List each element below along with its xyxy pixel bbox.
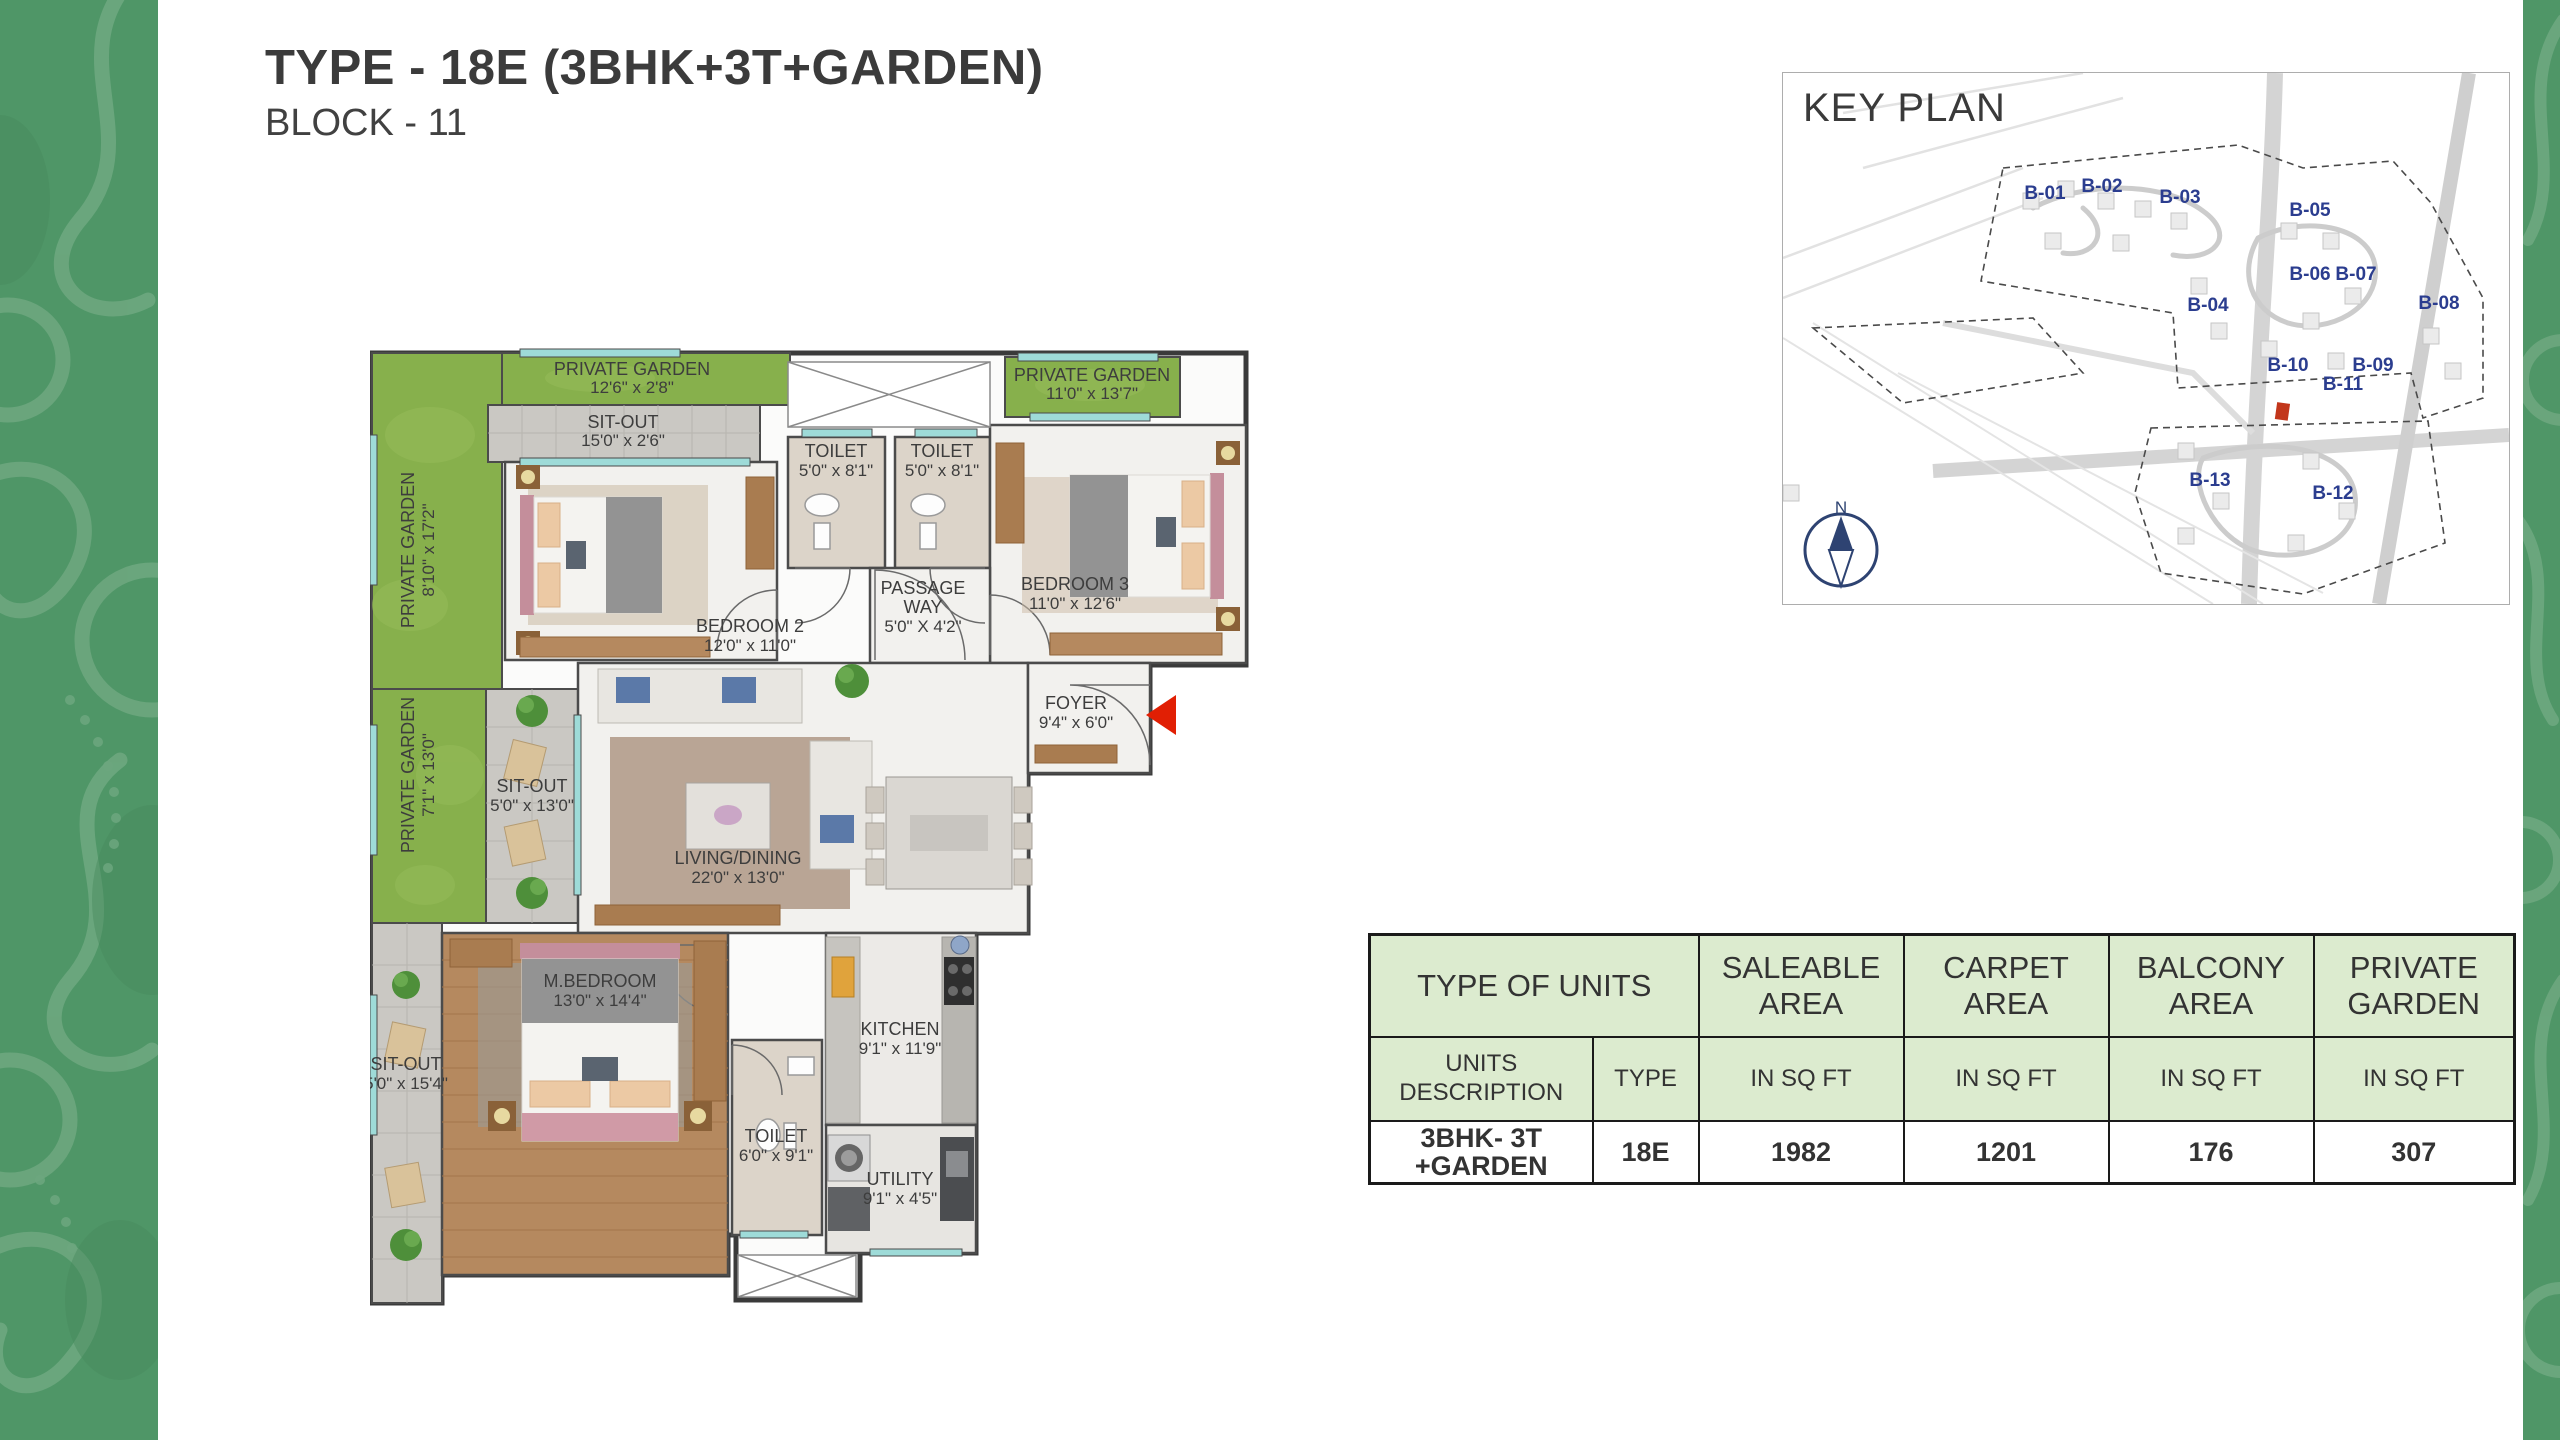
block-label-b01: B-01 [2024,183,2066,204]
svg-text:9'4" x 6'0": 9'4" x 6'0" [1039,713,1113,732]
block-label-b11: B-11 [2323,374,2364,395]
header-saleable-area: SALEABLE AREA [1699,935,1904,1038]
svg-text:WAY: WAY [904,597,943,617]
svg-text:5'0" X 4'2": 5'0" X 4'2" [884,617,961,636]
paisley-pattern-left [0,0,158,1440]
page-title: TYPE - 18E (3BHK+3T+GARDEN) [265,42,1044,96]
block-label-b08: B-08 [2418,293,2459,314]
value-type: 18E [1593,1121,1699,1184]
label-bedroom-3: BEDROOM 3 [1021,574,1129,594]
block-label-b10: B-10 [2267,355,2308,376]
floor-plan-drawing: PRIVATE GARDEN 12'6" x 2'8" SIT-OUT 15'0… [370,345,1250,1310]
left-decorative-band [0,0,158,1440]
subheader-unit-1: IN SQ FT [1699,1037,1904,1121]
value-carpet-area: 1201 [1904,1121,2109,1184]
label-toilet-2: TOILET [911,441,974,461]
block-label-b09: B-09 [2352,355,2393,376]
svg-text:9'1" x 11'9": 9'1" x 11'9" [859,1039,942,1058]
floor-plan: PRIVATE GARDEN 12'6" x 2'8" SIT-OUT 15'0… [370,345,1250,1310]
svg-text:13'0" x 14'4": 13'0" x 14'4" [553,991,646,1010]
block-label-b12: B-12 [2312,483,2353,504]
brochure-page: { "page": { "title": "TYPE - 18E (3BHK+3… [0,0,2560,1440]
key-plan-title: KEY PLAN [1803,86,2006,130]
header-type-of-units: TYPE OF UNITS [1370,935,1699,1038]
label-living-dining: LIVING/DINING [674,848,801,868]
svg-text:5'0" x 8'1": 5'0" x 8'1" [799,461,873,480]
right-decorative-band [2523,0,2560,1440]
value-units-description: 3BHK- 3T +GARDEN [1370,1121,1593,1184]
svg-text:8'10" x 17'2": 8'10" x 17'2" [419,503,438,596]
svg-text:22'0" x 13'0": 22'0" x 13'0" [691,868,784,887]
label-sit-out-left: SIT-OUT [497,776,568,796]
svg-text:11'0" x 13'7": 11'0" x 13'7" [1046,384,1138,403]
block-label-b06: B-06 [2289,264,2330,285]
block-label-b04: B-04 [2187,295,2229,316]
label-sit-out-top: SIT-OUT [588,412,659,432]
master-bedroom-furniture [450,939,726,1141]
label-private-garden-left-lower: PRIVATE GARDEN [398,697,418,853]
block-label-b03: B-03 [2159,187,2200,208]
svg-text:12'6" x 2'8": 12'6" x 2'8" [590,378,674,397]
highlighted-block-marker [2275,402,2290,421]
key-plan: B-01 B-02 B-03 B-04 B-05 B-06 B-07 B-08 … [1782,72,2510,605]
subheader-unit-2: IN SQ FT [1904,1037,2109,1121]
subheader-unit-4: IN SQ FT [2314,1037,2515,1121]
paisley-pattern-right [2523,0,2560,1440]
svg-text:6'0" x 9'1": 6'0" x 9'1" [739,1146,813,1165]
value-saleable-area: 1982 [1699,1121,1904,1184]
north-compass-icon: N [1805,498,1877,586]
svg-text:12'0" x 11'0": 12'0" x 11'0" [704,636,796,655]
svg-text:15'0" x 2'6": 15'0" x 2'6" [581,431,665,450]
label-private-garden-top: PRIVATE GARDEN [554,359,710,379]
label-toilet-1: TOILET [805,441,868,461]
foyer-furniture [1035,745,1117,763]
block-label-b05: B-05 [2289,200,2331,221]
table-header-row: TYPE OF UNITS SALEABLE AREA CARPET AREA … [1370,935,2515,1038]
svg-text:11'0" x 12'6": 11'0" x 12'6" [1029,594,1121,613]
subheader-type: TYPE [1593,1037,1699,1121]
subheader-units-description: UNITS DESCRIPTION [1370,1037,1593,1121]
label-m-bedroom: M.BEDROOM [543,971,656,991]
block-label-b07: B-07 [2335,264,2376,285]
svg-text:5'0" x 15'4": 5'0" x 15'4" [370,1074,448,1093]
label-m-toilet: TOILET [745,1126,808,1146]
value-private-garden: 307 [2314,1121,2515,1184]
page-subtitle: BLOCK - 11 [265,102,1044,145]
svg-text:7'1" x 13'0": 7'1" x 13'0" [419,733,438,817]
units-table: TYPE OF UNITS SALEABLE AREA CARPET AREA … [1368,933,2516,1185]
svg-text:5'0" x 8'1": 5'0" x 8'1" [905,461,979,480]
subheader-unit-3: IN SQ FT [2109,1037,2314,1121]
label-private-garden-top-right: PRIVATE GARDEN [1014,365,1170,385]
label-kitchen: KITCHEN [860,1019,939,1039]
block-label-b02: B-02 [2081,176,2122,197]
label-sit-out-bottom: SIT-OUT [371,1054,442,1074]
header-balcony-area: BALCONY AREA [2109,935,2314,1038]
label-passage-way: PASSAGE [881,578,966,598]
label-private-garden-left-upper: PRIVATE GARDEN [398,472,418,628]
title-block: TYPE - 18E (3BHK+3T+GARDEN) BLOCK - 11 [265,42,1044,145]
svg-text:5'0" x 13'0": 5'0" x 13'0" [490,796,574,815]
table-data-row: 3BHK- 3T +GARDEN 18E 1982 1201 176 307 [1370,1121,2515,1184]
label-bedroom-2: BEDROOM 2 [696,616,804,636]
header-carpet-area: CARPET AREA [1904,935,2109,1038]
value-balcony-area: 176 [2109,1121,2314,1184]
table-subheader-row: UNITS DESCRIPTION TYPE IN SQ FT IN SQ FT… [1370,1037,2515,1121]
label-foyer: FOYER [1045,693,1107,713]
key-plan-map: B-01 B-02 B-03 B-04 B-05 B-06 B-07 B-08 … [1783,73,2509,604]
svg-text:9'1" x 4'5": 9'1" x 4'5" [863,1189,937,1208]
block-label-b13: B-13 [2189,470,2230,491]
label-utility: UTILITY [866,1169,933,1189]
header-private-garden: PRIVATE GARDEN [2314,935,2515,1038]
